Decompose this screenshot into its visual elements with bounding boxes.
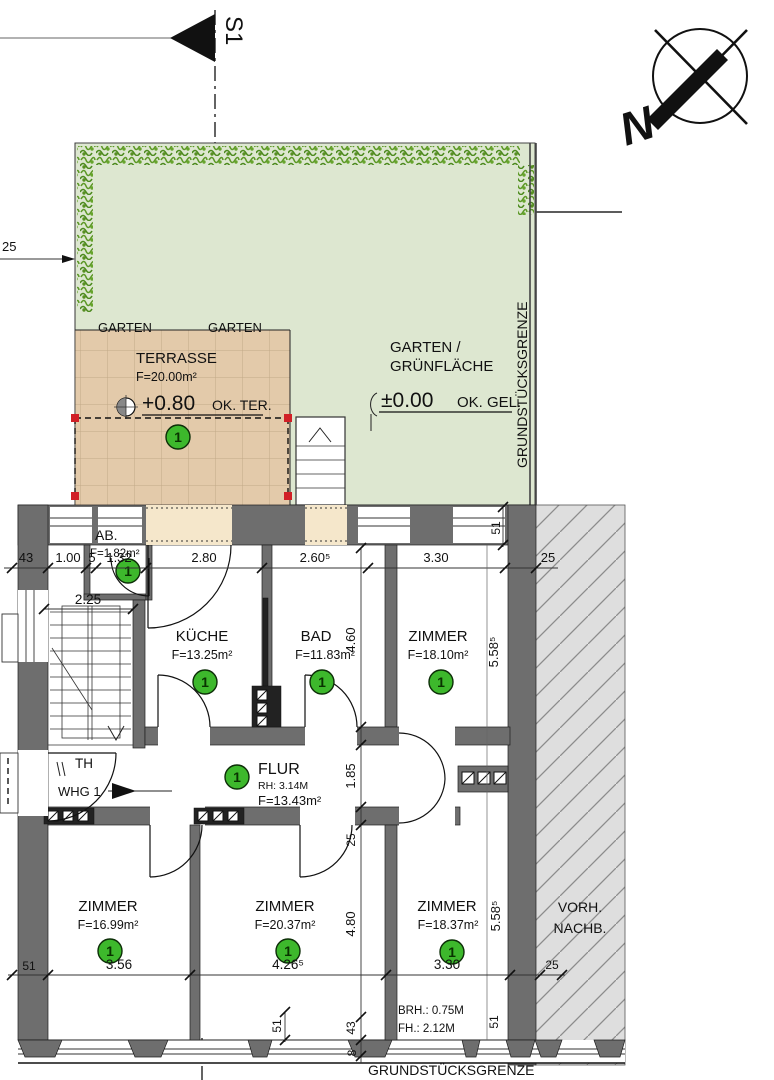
dim-sill-51: 51: [270, 1019, 284, 1033]
hedge-right: [518, 165, 534, 215]
room-flur-area: F=13.43m²: [258, 793, 322, 808]
neighbor-building: VORH. NACHB.: [535, 505, 625, 1065]
corner-marker: [71, 414, 79, 422]
dim-v-bad: 4.60: [343, 627, 358, 652]
dim-top-330: 3.30: [423, 550, 448, 565]
svg-text:1: 1: [318, 674, 326, 690]
section-arrow-icon: [170, 14, 215, 62]
room-flur-name: FLUR: [258, 761, 300, 778]
staircase: [48, 606, 133, 776]
garden-level: ±0.00: [381, 389, 433, 412]
room-zimmer-s-name: ZIMMER: [255, 898, 314, 915]
dim-top-100: 1.00: [55, 550, 80, 565]
apartment-entrance-label: WHG 1: [58, 783, 172, 799]
dim-top-43: 43: [19, 550, 33, 565]
dim-v-zimmer-se: 5.58⁵: [488, 901, 503, 932]
room-kueche-area: F=13.25m²: [172, 648, 233, 662]
dim-bottom-wall-left: 51: [22, 959, 36, 973]
dim-wall-top-right: 51: [489, 521, 503, 535]
window-note-2: FH.: 2.12M: [398, 1023, 455, 1035]
svg-text:1: 1: [174, 429, 182, 445]
wall-party: [508, 505, 536, 1065]
dim-wall-bottom-right: 51: [487, 1015, 501, 1029]
hedge-left: [77, 165, 93, 312]
room-zimmer-se-area: F=18.37m²: [418, 918, 479, 932]
property-line-bottom-label: GRUNDSTÜCKSGRENZE: [368, 1061, 534, 1078]
exterior-stair: [296, 417, 345, 505]
dim-v-zimmer-ne: 5.58⁵: [486, 637, 501, 668]
floorplan-page: S1 N GRUNDSTÜCKSGRENZE GARTEN / GRÜNFLÄC…: [0, 0, 774, 1080]
building-walls: [18, 505, 625, 1065]
terrace-door: [148, 545, 231, 628]
terrace-title: TERRASSE: [136, 350, 217, 367]
corner-marker: [284, 414, 292, 422]
garden-level-ref: OK. GEL.: [457, 394, 521, 411]
svg-text:1: 1: [437, 674, 445, 690]
dim-garden-offset: 25: [2, 239, 16, 254]
dim-bottom-356: 3.56: [106, 957, 132, 972]
dim-top-280: 2.80: [191, 550, 216, 565]
section-label: S1: [220, 16, 247, 45]
unit-badge-terrace: 1: [166, 425, 190, 449]
dim-v-flur: 1.85: [343, 763, 358, 788]
unit-badge-zimmer-ne: 1: [429, 670, 453, 694]
room-zimmer-ne-name: ZIMMER: [408, 628, 467, 645]
room-zimmer-sw-area: F=16.99m²: [78, 918, 139, 932]
unit-badge-kueche: 1: [193, 670, 217, 694]
hedge-top: [77, 146, 520, 165]
room-kueche-name: KÜCHE: [176, 627, 229, 645]
wall-bad-zimmer: [385, 545, 397, 727]
dim-top-25: 25: [541, 550, 555, 565]
stairwell-label: TH: [75, 756, 93, 771]
unit-badge-flur: 1: [225, 765, 249, 789]
room-zimmer-se-name: ZIMMER: [417, 898, 476, 915]
wall-corridor-bottom: [48, 807, 460, 825]
dim-stair-width: 2.25: [75, 592, 101, 607]
terrace-level: +0.80: [142, 392, 195, 415]
zimmer-s-door: [300, 825, 352, 877]
dim-sill-43: 43: [344, 1021, 358, 1035]
terrace-size: F=20.00m²: [136, 370, 197, 384]
dim-v-flur-wall: 25: [344, 833, 358, 847]
dim-top-132: 1.32: [106, 550, 131, 565]
north-needle-icon: [647, 49, 728, 130]
terrace-door-threshold: [146, 505, 232, 545]
unit-badge-bad: 1: [310, 670, 334, 694]
whg-arrow-icon: [112, 783, 136, 799]
window-note-1: BRH.: 0.75M: [398, 1005, 464, 1017]
dim-v-zimmer-s: 4.80: [343, 911, 358, 936]
garden-door-threshold: [305, 505, 347, 545]
garden-ghost-label-1: GARTEN: [98, 320, 152, 335]
room-bad-name: BAD: [301, 628, 332, 645]
wall-stair-right: [133, 600, 145, 748]
neighbor-label-1: VORH.: [558, 899, 602, 915]
dim-bottom-330: 3.30: [434, 957, 460, 972]
north-label: N: [613, 96, 661, 156]
dim-top-260: 2.60⁵: [300, 550, 331, 565]
dim-top-5: 5: [88, 550, 95, 565]
svg-text:1: 1: [124, 563, 132, 579]
room-zimmer-ne-area: F=18.10m²: [408, 648, 469, 662]
room-flur-height: RH: 3.14M: [258, 780, 308, 792]
wall-zs-zse: [385, 825, 397, 1040]
room-zimmer-sw-name: ZIMMER: [78, 898, 137, 915]
garden-title-2: GRÜNFLÄCHE: [390, 357, 493, 375]
whg-label: WHG 1: [58, 784, 101, 799]
garden-title-1: GARTEN /: [390, 339, 461, 356]
svg-text:1: 1: [233, 769, 241, 785]
neighbor-label-2: NACHB.: [554, 920, 607, 936]
dim-sill-8: 8: [345, 1049, 359, 1056]
room-zimmer-s-area: F=20.37m²: [255, 918, 316, 932]
room-ab-name: AB.: [95, 527, 118, 543]
garden-ghost-label-2: GARTEN: [208, 320, 262, 335]
terrace-level-ref: OK. TER.: [212, 397, 272, 413]
floorplan-drawing: S1 N GRUNDSTÜCKSGRENZE GARTEN / GRÜNFLÄC…: [0, 0, 774, 1080]
north-compass: N: [613, 29, 747, 156]
dim-neighbor-offset: 25: [545, 958, 559, 972]
corner-marker: [284, 492, 292, 500]
property-line-right-label: GRUNDSTÜCKSGRENZE: [513, 302, 530, 468]
corner-marker: [71, 492, 79, 500]
svg-text:1: 1: [201, 674, 209, 690]
dim-bottom-426: 4.26⁵: [272, 957, 304, 972]
